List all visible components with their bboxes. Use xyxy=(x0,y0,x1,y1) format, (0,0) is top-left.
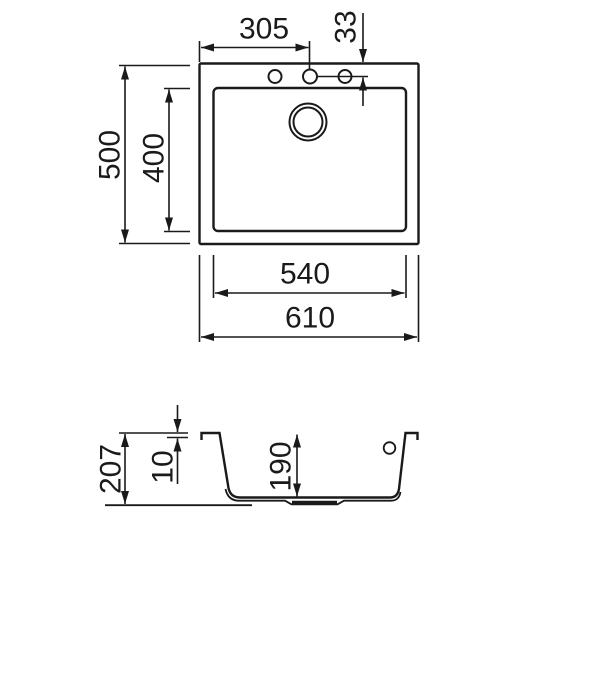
dim-label-33: 33 xyxy=(330,10,363,43)
technical-drawing: 305 33 500 400 540 610 xyxy=(0,0,600,689)
faucet-hole-middle xyxy=(303,70,317,84)
dim-label-400: 400 xyxy=(138,133,171,183)
dim-label-610: 610 xyxy=(285,302,335,335)
dim-label-207: 207 xyxy=(95,444,128,494)
drain-inner-circle xyxy=(294,108,323,137)
dim-label-305: 305 xyxy=(239,13,289,46)
dim-label-540: 540 xyxy=(280,258,330,291)
dim-label-10: 10 xyxy=(147,450,180,483)
section-view: 207 10 190 xyxy=(95,405,418,505)
faucet-hole-left xyxy=(269,70,282,83)
overflow-hole xyxy=(384,442,396,454)
bowl-section-inner-surface xyxy=(202,433,418,498)
sink-outer-edge xyxy=(200,64,419,245)
dim-label-500: 500 xyxy=(94,130,127,180)
top-view: 305 33 500 400 540 610 xyxy=(94,10,419,342)
drain-outer-circle xyxy=(290,104,327,141)
bowl-inner-edge xyxy=(214,88,407,231)
drawing-page: 305 33 500 400 540 610 xyxy=(0,0,600,689)
dim-label-190: 190 xyxy=(265,441,298,491)
